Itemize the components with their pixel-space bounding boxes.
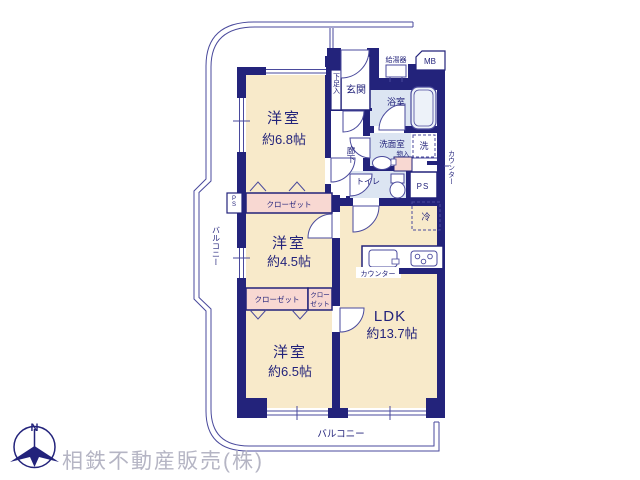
compass: N	[10, 422, 59, 468]
washer-label: 洗	[419, 140, 428, 151]
ldk-size: 約13.7帖	[366, 326, 417, 341]
window-south-ldk	[348, 409, 426, 417]
washbasin-faucet-icon	[391, 159, 396, 165]
closet-bottom-label: クローゼット	[255, 294, 300, 304]
toilet-label: トイレ	[356, 177, 380, 186]
opening-bedroom3	[332, 306, 340, 332]
closet-small-label-2: ゼット	[310, 299, 330, 308]
ldk-floor	[340, 206, 437, 408]
bathtub-icon	[411, 87, 436, 129]
meter-box-label: MB	[424, 57, 436, 66]
compass-north-label: N	[31, 422, 39, 434]
hallway-label: 廊下	[346, 145, 356, 164]
storage-box	[394, 157, 412, 171]
balcony-bottom-label: バルコニー	[317, 429, 364, 440]
washroom-label: 洗面室	[379, 139, 405, 149]
wall-south-pier	[328, 408, 348, 418]
wall-north-bath	[372, 78, 445, 90]
window-west-bedroom2	[237, 248, 246, 278]
bedroom3-name: 洋室	[273, 344, 307, 361]
shoe-box-label: 下足入	[333, 73, 341, 94]
floorplan-canvas: 洋室 約6.8帖 洋室 約4.5帖 洋室 約6.5帖 LDK 約13.7帖 玄関…	[0, 0, 640, 480]
kitchen-sink-knob	[392, 259, 399, 264]
window-north-bedroom1	[266, 67, 326, 75]
kitchen-sink-icon	[369, 250, 397, 267]
bathroom-label: 浴室	[387, 96, 405, 107]
opening-bedroom2	[332, 212, 340, 238]
floorplan-svg: 洋室 約6.8帖 洋室 約4.5帖 洋室 約6.5帖 LDK 約13.7帖 玄関…	[0, 0, 640, 480]
company-name: 相鉄不動産販売(株)	[62, 450, 264, 473]
toilet-bowl-icon	[390, 182, 405, 198]
window-west-bedroom1	[237, 98, 246, 152]
washbasin-icon	[373, 157, 392, 170]
opening-bedroom1	[325, 158, 331, 184]
pipe-space-left-label: PS	[231, 196, 237, 208]
bedroom3-size: 約6.5帖	[268, 364, 312, 379]
wall-entrance-left	[327, 48, 341, 56]
bedroom2-name: 洋室	[272, 235, 306, 252]
kitchen-counter-bar	[399, 268, 443, 274]
water-heater-label: 給湯器	[386, 55, 407, 64]
balcony-left-label: バルコニー	[212, 226, 221, 266]
wall-corner-southeast	[426, 398, 445, 418]
bedroom1-size: 約6.8帖	[262, 132, 306, 147]
compass-bird-icon	[10, 446, 59, 467]
wall-above-shoebox	[325, 56, 341, 70]
storage-label: 物入	[397, 149, 411, 158]
bedroom1-name: 洋室	[267, 110, 301, 127]
side-counter-label: カウンター	[448, 150, 456, 185]
bedroom2-size: 約4.5帖	[267, 254, 311, 269]
closet-top-label: クローゼット	[267, 199, 312, 209]
wall-corner-southwest	[237, 398, 267, 418]
entrance-label: 玄関	[346, 83, 366, 96]
pipe-space-right-label: PS	[417, 182, 430, 191]
wall-east	[437, 68, 445, 418]
refrigerator-label: 冷	[421, 211, 430, 222]
opening-ldk	[353, 198, 379, 206]
kitchen-counter-label: カウンター	[361, 269, 396, 278]
ldk-name: LDK	[374, 308, 406, 325]
closet-small-label-1: クロー	[310, 291, 330, 299]
water-heater-icon	[386, 65, 406, 77]
side-counter-tick	[427, 161, 443, 165]
